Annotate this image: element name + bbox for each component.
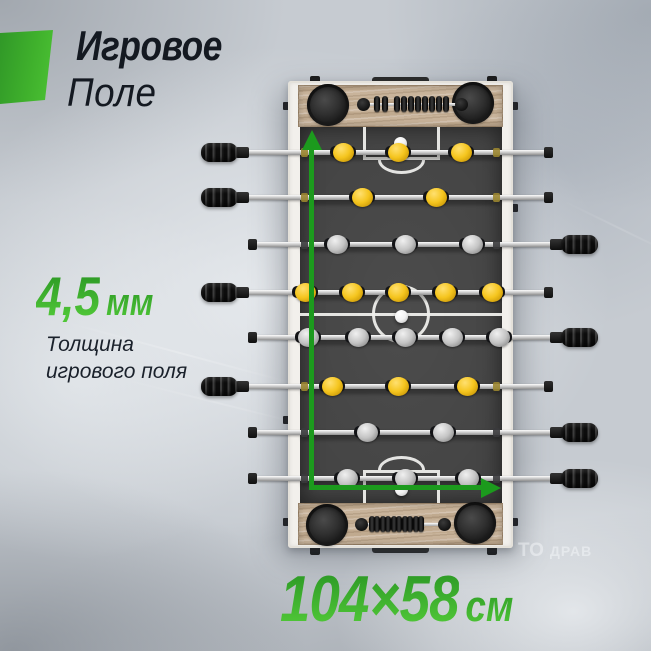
player-figure-yellow <box>421 187 451 207</box>
handle-grip <box>561 469 598 488</box>
handle-grip <box>201 377 238 396</box>
player-head <box>433 423 454 442</box>
player-figure-yellow <box>430 282 460 302</box>
rod-bar <box>246 195 546 200</box>
player-head <box>435 283 456 302</box>
player-figure-yellow <box>452 376 482 396</box>
thickness-callout: 4,5 мм Толщина игрового поля <box>36 270 187 385</box>
player-figure-gray <box>343 327 373 347</box>
player-figure-gray <box>293 327 323 347</box>
rod-end-cap <box>544 381 553 392</box>
page-title: Игровое Поле <box>76 25 250 113</box>
player-figure-gray <box>390 234 420 254</box>
player-figure-yellow <box>317 376 347 396</box>
player-figure-gray <box>322 234 352 254</box>
rod-bumper <box>301 474 308 483</box>
player-head <box>442 328 463 347</box>
player-head <box>451 143 472 162</box>
player-head <box>342 283 363 302</box>
handle-grip <box>201 143 238 162</box>
thickness-caption-line1: Толщина <box>46 331 187 358</box>
title-line1: Игровое <box>76 25 222 67</box>
player-figure-gray <box>352 422 382 442</box>
rod-bumper <box>493 428 500 437</box>
player-head <box>388 143 409 162</box>
handle-grip <box>201 188 238 207</box>
rod-end-cap <box>248 239 257 250</box>
measurement-arrow-vertical <box>309 148 314 490</box>
player-figure-yellow <box>290 282 320 302</box>
player-figure-gray <box>484 327 514 347</box>
thickness-value: 4,5 <box>36 270 100 322</box>
rod-end-cap <box>544 147 553 158</box>
rod-bumper <box>301 240 308 249</box>
rod-bumper <box>493 382 500 391</box>
rod-bumper <box>493 240 500 249</box>
handle-grip <box>201 283 238 302</box>
player-head <box>426 188 447 207</box>
player-head <box>395 235 416 254</box>
product-infographic-canvas: Игровое Поле 4,5 мм Толщина игрового пол… <box>0 0 651 651</box>
rod-bumper <box>493 148 500 157</box>
player-head <box>388 283 409 302</box>
thickness-value-row: 4,5 мм <box>36 270 163 325</box>
handle-grip <box>561 328 598 347</box>
thickness-caption-line2: игрового поля <box>46 358 187 385</box>
rod-end-cap <box>248 473 257 484</box>
rod-shadow <box>301 436 501 440</box>
dimensions-value: 104×58 <box>280 568 459 630</box>
rod-bumper <box>301 193 308 202</box>
player-head <box>457 377 478 396</box>
player-figure-yellow <box>383 376 413 396</box>
thickness-caption: Толщина игрового поля <box>46 331 187 385</box>
rod-bumper <box>301 428 308 437</box>
player-figure-gray <box>437 327 467 347</box>
rod-bumper <box>493 193 500 202</box>
player-figure-yellow <box>328 142 358 162</box>
player-figure-yellow <box>446 142 476 162</box>
rod-end-cap <box>544 192 553 203</box>
player-head <box>388 377 409 396</box>
arrow-head-up-icon <box>302 130 322 150</box>
rod-end-cap <box>248 427 257 438</box>
dimensions-label: 104×58 см <box>280 568 513 632</box>
dimensions-unit: см <box>465 582 513 632</box>
player-figure-yellow <box>383 142 413 162</box>
player-head <box>357 423 378 442</box>
player-head <box>333 143 354 162</box>
title-line2: Поле <box>67 73 235 113</box>
player-head <box>352 188 373 207</box>
arrow-head-right-icon <box>481 478 501 498</box>
rod-end-cap <box>544 287 553 298</box>
player-head <box>348 328 369 347</box>
player-figure-yellow <box>347 187 377 207</box>
handle-grip <box>561 423 598 442</box>
player-head <box>489 328 510 347</box>
player-head <box>327 235 348 254</box>
player-head <box>298 328 319 347</box>
rod-end-cap <box>248 332 257 343</box>
player-figure-yellow <box>337 282 367 302</box>
player-figure-gray <box>390 327 420 347</box>
thickness-unit: мм <box>106 282 153 325</box>
handle-grip <box>561 235 598 254</box>
player-figure-yellow <box>383 282 413 302</box>
rod-bumper <box>301 382 308 391</box>
rod-shadow <box>301 201 501 205</box>
measurement-arrow-horizontal <box>311 485 484 490</box>
player-head <box>395 328 416 347</box>
player-figure-gray <box>457 234 487 254</box>
player-figure-yellow <box>477 282 507 302</box>
player-head <box>462 235 483 254</box>
player-head <box>482 283 503 302</box>
player-head <box>322 377 343 396</box>
player-figure-gray <box>428 422 458 442</box>
